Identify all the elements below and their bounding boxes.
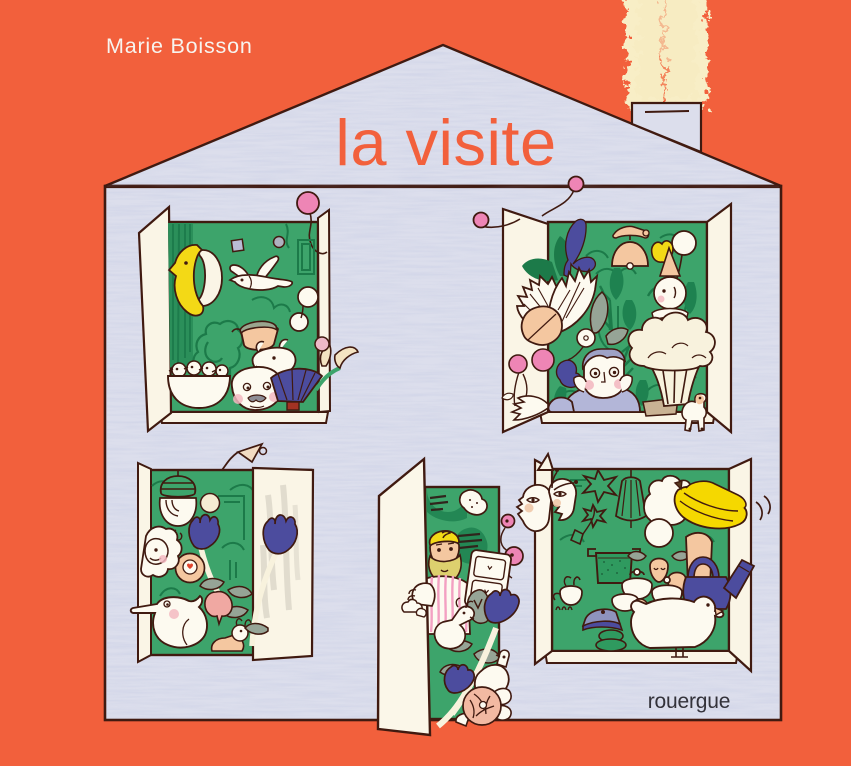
svg-text:la visite: la visite (335, 106, 556, 179)
svg-text:Marie Boisson: Marie Boisson (106, 34, 253, 58)
svg-text:rouergue: rouergue (648, 690, 730, 713)
